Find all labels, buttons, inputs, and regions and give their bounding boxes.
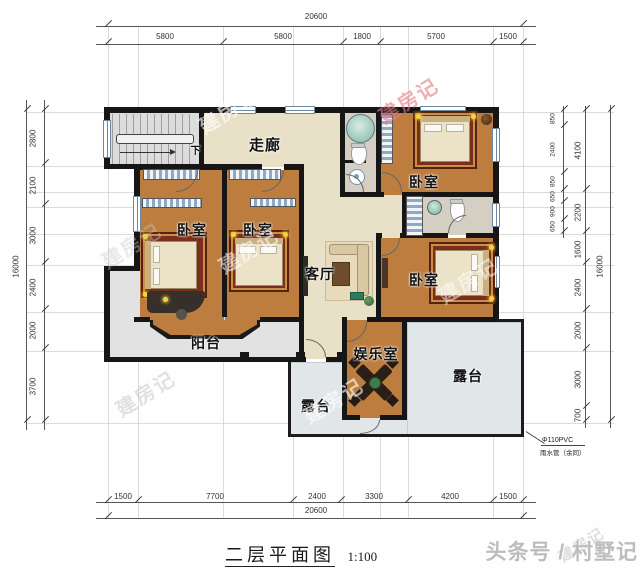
dim-label: 3700 <box>29 367 38 407</box>
drawing-title: 二层平面图 <box>225 545 335 567</box>
bed-pillow <box>239 246 256 254</box>
bedside-lamp <box>489 296 494 301</box>
dim-label: 1500 <box>488 32 528 41</box>
dim-label: 2800 <box>29 119 38 159</box>
dim-total-right: 16000 <box>596 247 605 287</box>
toilet-tank <box>351 143 365 148</box>
bed-pillow <box>471 254 478 271</box>
dim-line <box>563 106 564 238</box>
wall-ent-bottom <box>380 415 407 420</box>
room-label-entertainment: 娱乐室 <box>336 344 416 364</box>
parapet-bottom <box>288 434 524 437</box>
dim-label: 650 <box>550 215 557 239</box>
dim-line <box>96 518 536 519</box>
window <box>492 128 500 162</box>
dim-line <box>96 502 536 503</box>
pillar <box>240 352 249 362</box>
dim-label: 2400 <box>550 138 557 162</box>
dim-label: 2000 <box>29 311 38 351</box>
wall-bath2-bottom <box>466 233 497 238</box>
pipe-underline <box>541 445 585 446</box>
dim-line <box>96 26 536 27</box>
washbasin <box>427 200 442 215</box>
wardrobe <box>381 114 393 164</box>
wardrobe <box>142 198 202 208</box>
credit-text: 头条号 / 村墅记 <box>450 536 638 566</box>
dim-label: 850 <box>550 107 557 131</box>
drawing-scale: 1:100 <box>347 549 377 564</box>
bed-headboard <box>145 241 151 289</box>
dim-label: 3300 <box>354 492 394 501</box>
wall-bath1-bottom <box>340 192 384 197</box>
plant-pot <box>481 114 492 125</box>
dim-label: 1500 <box>103 492 143 501</box>
bed-pillow <box>446 124 464 132</box>
dim-label: 4100 <box>574 131 583 171</box>
stairs-down-label: 下 <box>176 142 216 157</box>
wardrobe <box>406 196 423 236</box>
dim-label: 2000 <box>574 311 583 351</box>
room-label-corridor: 走廊 <box>235 134 295 155</box>
wall-bedroom-divider <box>222 170 227 317</box>
dim-line <box>44 100 45 430</box>
wall-bedrooms-bottom <box>134 317 150 322</box>
floor-plan-sheet: 走廊 下 卧室 卧室 卧室 卧室 客厅 阳台 娱乐室 露台 露台 建房记 建房记… <box>0 0 640 573</box>
room-label-balcony: 阳台 <box>176 333 236 353</box>
hall-nook-floor <box>378 195 405 238</box>
wall-balcony-bottom <box>104 357 306 362</box>
plant <box>364 296 374 306</box>
dim-label: 7700 <box>195 492 235 501</box>
dim-line <box>26 100 27 430</box>
dim-label: 3000 <box>574 360 583 400</box>
dim-label: 5800 <box>263 32 303 41</box>
bedside-lamp <box>416 114 421 119</box>
dim-label: 1600 <box>574 230 583 270</box>
sofa <box>357 244 369 296</box>
bed-pillow <box>471 275 478 292</box>
dim-label: 3000 <box>29 216 38 256</box>
bed-headboard <box>483 250 489 296</box>
pipe-label: Φ110PVC <box>542 437 573 444</box>
dim-line <box>610 105 611 428</box>
wall-ent-right <box>402 322 407 420</box>
desk <box>147 291 205 313</box>
dim-total-top: 20600 <box>296 12 336 21</box>
window <box>230 106 256 114</box>
dim-label: 5700 <box>416 32 456 41</box>
parapet-right <box>521 322 524 437</box>
dim-label: 4200 <box>430 492 470 501</box>
parapet-top <box>497 319 524 322</box>
dim-total-left: 16000 <box>12 247 21 287</box>
dim-label: 700 <box>574 396 583 436</box>
wall-bath1-left <box>340 112 345 195</box>
window <box>285 106 315 114</box>
window <box>103 120 111 158</box>
bed <box>420 116 470 162</box>
cabinet <box>382 258 388 288</box>
dim-label: 2400 <box>29 268 38 308</box>
dim-line <box>96 44 536 45</box>
dim-label: 2400 <box>574 268 583 308</box>
wall-stair-right <box>199 112 204 167</box>
dim-total-bottom: 20600 <box>296 506 336 515</box>
room-label-bedroom-rm: 卧室 <box>394 270 454 290</box>
bed-pillow <box>260 246 277 254</box>
dim-label: 2200 <box>574 193 583 233</box>
dim-label: 5800 <box>145 32 185 41</box>
window <box>133 196 141 232</box>
pillar <box>296 352 305 362</box>
wall-nook-bottom <box>400 233 405 238</box>
dim-label: 2100 <box>29 166 38 206</box>
room-label-terrace-bottom: 露台 <box>286 396 346 416</box>
bed-headboard <box>420 116 470 122</box>
window <box>492 203 500 227</box>
mahjong-center <box>369 377 381 389</box>
wall-hall-right <box>376 238 381 322</box>
bedside-lamp <box>489 245 494 250</box>
wardrobe <box>250 198 296 207</box>
room-label-bedroom-tr: 卧室 <box>394 172 454 192</box>
drawing-title-block: 二层平面图 1:100 <box>225 541 377 567</box>
tv-bench <box>350 292 364 300</box>
stair-arrow-line <box>120 152 172 153</box>
room-label-terrace-right: 露台 <box>438 366 498 386</box>
wall-ent-top <box>367 317 407 322</box>
dim-label: 1500 <box>488 492 528 501</box>
bed-pillow <box>424 124 442 132</box>
pipe-note: 雨水管（余同） <box>540 447 586 457</box>
desk-lamp <box>163 297 168 302</box>
room-label-bedroom-b: 卧室 <box>228 220 288 240</box>
bedside-lamp <box>471 114 476 119</box>
room-label-living: 客厅 <box>290 264 350 284</box>
bathtub <box>346 114 375 143</box>
bed-pillow <box>153 246 160 263</box>
wall-bedrooms-bottom <box>260 317 304 322</box>
wall-balcony-left <box>104 266 110 362</box>
bedside-lamp <box>143 234 148 239</box>
dim-label: 1800 <box>342 32 382 41</box>
dim-line <box>585 106 586 428</box>
room-label-bedroom-a: 卧室 <box>162 220 222 240</box>
toilet-tank <box>450 199 463 204</box>
desk-chair <box>176 309 187 320</box>
bed-pillow <box>153 268 160 285</box>
dim-label: 2400 <box>297 492 337 501</box>
